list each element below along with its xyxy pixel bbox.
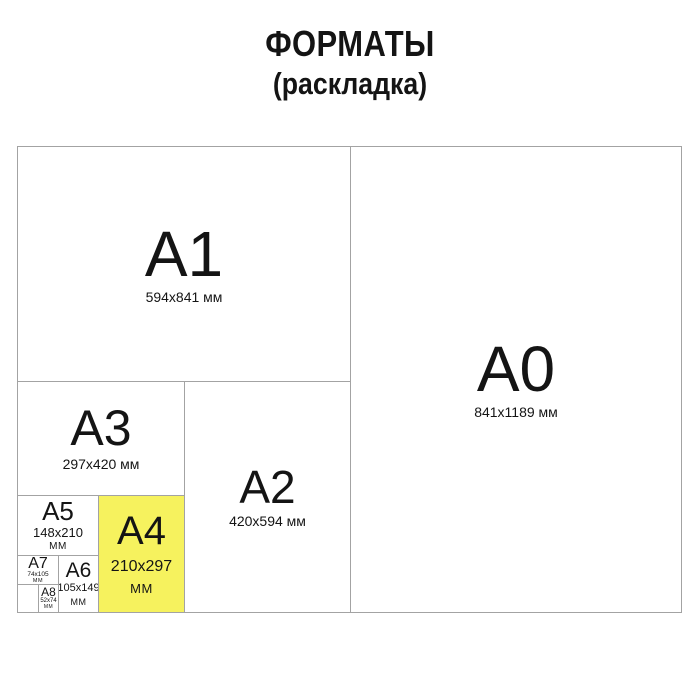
format-box-a0: A0 841x1189 мм [350,147,681,612]
format-dims-a5: 148x210 [33,525,83,541]
format-dims-a2: 420x594 мм [229,513,306,531]
format-box-a1: A1 594x841 мм [18,147,350,382]
format-box-a3: A3 297x420 мм [18,382,184,496]
format-unit-a8: мм [44,605,53,611]
format-label-a6: A6 [66,560,92,581]
format-box-a8: A8 52x74 мм [38,585,58,612]
format-label-a8: A8 [41,587,56,598]
format-unit-a6: мм [71,597,87,608]
format-dims-a3: 297x420 мм [63,456,140,474]
page-title: ФОРМАТЫ (раскладка) [49,22,651,102]
format-label-a3: A3 [70,403,131,453]
title-line-1: ФОРМАТЫ [49,22,651,65]
title-line-2: (раскладка) [49,65,651,102]
format-label-a2: A2 [239,464,295,510]
format-unit-a7: мм [33,578,43,584]
format-box-a5: A5 148x210 мм [18,496,98,556]
format-unit-a5: мм [49,541,67,553]
format-dims-a1: 594x841 мм [146,289,223,307]
format-label-a4: A4 [117,511,166,551]
paper-formats-diagram: A1 594x841 мм A0 841x1189 мм A3 297x420 … [17,146,682,613]
format-label-a0: A0 [477,337,555,401]
page: ФОРМАТЫ (раскладка) A1 594x841 мм A0 841… [0,0,700,700]
format-label-a1: A1 [145,222,223,286]
format-label-a5: A5 [42,498,74,524]
format-box-a6: A6 105x149 мм [58,556,98,612]
format-dims-a0: 841x1189 мм [474,404,558,422]
format-label-a7: A7 [28,556,48,571]
format-dims-a7: 74x105 [27,571,48,578]
format-unit-a4: мм [130,581,153,597]
format-dims-a6: 105x149 [58,582,98,596]
format-box-a7: A7 74x105 мм [18,556,58,585]
format-dims-a4: 210x297 [111,557,172,577]
format-box-a2: A2 420x594 мм [184,382,350,612]
format-box-a4-highlighted: A4 210x297 мм [98,496,184,612]
